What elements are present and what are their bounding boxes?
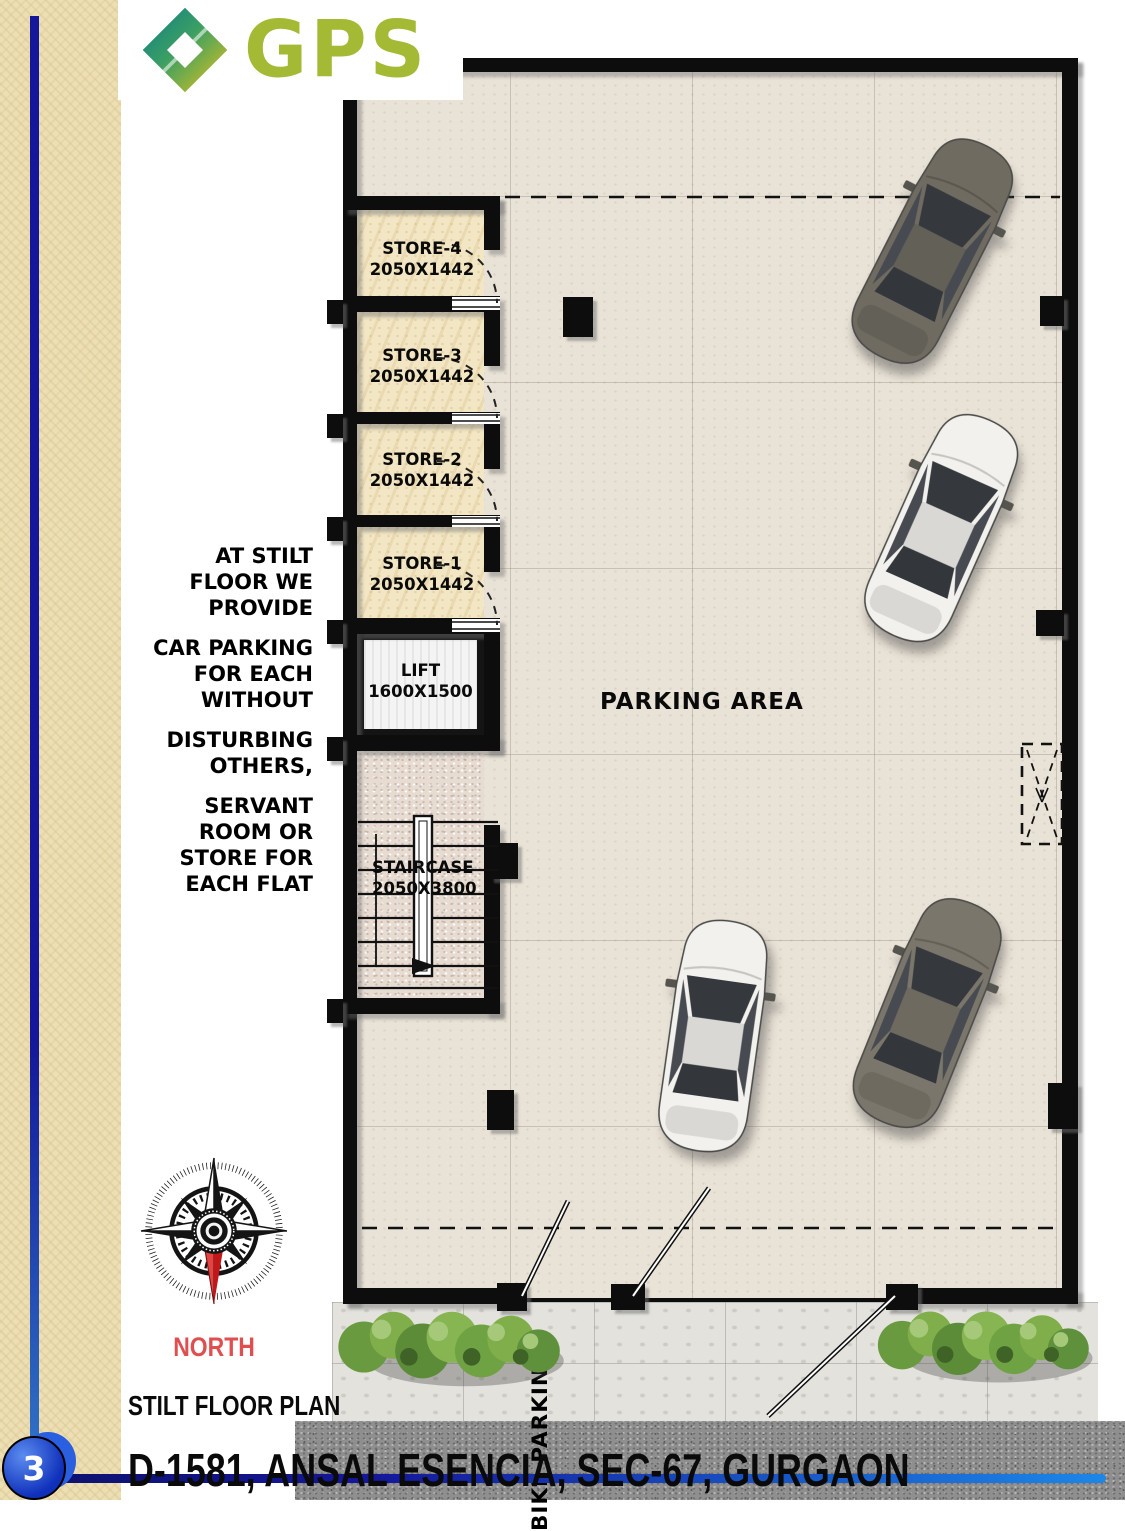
wall-s1-lift — [357, 618, 500, 634]
room-store-2: STORE-2 2050X1442 — [357, 449, 487, 492]
page-number-badge: 3 — [2, 1432, 74, 1498]
wall-left — [343, 58, 357, 1303]
pillar — [327, 999, 343, 1023]
wall-stair-bottom — [343, 998, 500, 1014]
address-title: D-1581, ANSAL ESENCIA, SEC-67, GURGAON — [128, 1443, 910, 1497]
pillar-right-wall — [1040, 296, 1064, 326]
pillar-freestanding — [487, 1090, 514, 1130]
pillar-gate — [611, 1284, 645, 1310]
pillar — [327, 517, 343, 541]
sidebar-texture-strip — [0, 0, 121, 1500]
annotation-paragraph: CAR PARKING FOR EACH WITHOUT — [118, 635, 313, 713]
room-store-4: STORE-4 2050X1442 — [357, 238, 487, 281]
annotation-paragraph: AT STILT FLOOR WE PROVIDE — [118, 543, 313, 621]
gps-diamond-icon — [140, 5, 230, 95]
gps-logo: GPS — [118, 0, 463, 100]
pillar-right-wall — [1036, 610, 1064, 636]
pillar — [327, 300, 343, 324]
page-number: 3 — [2, 1436, 66, 1500]
annotation-paragraph: DISTURBING OTHERS, — [118, 727, 313, 779]
wall-divider-s4-s3 — [357, 296, 500, 312]
accent-vertical-line — [30, 16, 39, 1440]
bush-row-right — [876, 1300, 1100, 1394]
wall-divider-s2-s1 — [357, 515, 500, 527]
north-label: NORTH — [149, 1332, 278, 1363]
room-lift: LIFT 1600X1500 — [357, 660, 484, 703]
pillar-right-wall — [1048, 1083, 1078, 1129]
room-store-3: STORE-3 2050X1442 — [357, 345, 487, 388]
parking-area-label: PARKING AREA — [600, 688, 820, 718]
pillar-stair-wall — [490, 843, 518, 879]
room-staircase: STAIRCASE 2050X3800 — [372, 857, 492, 900]
plan-title: STILT FLOOR PLAN — [128, 1390, 340, 1422]
gps-logo-text: GPS — [244, 11, 428, 90]
annotation-paragraph: SERVANT ROOM OR STORE FOR EACH FLAT — [118, 793, 313, 897]
wall-column-right-seg — [484, 634, 500, 751]
pillar — [327, 737, 343, 761]
compass-rose-icon — [138, 1155, 290, 1307]
wall-store4-top — [343, 196, 500, 210]
bush-row-left — [336, 1300, 572, 1398]
wall-lift-stair — [357, 735, 500, 751]
pillar — [327, 414, 343, 438]
pillar — [327, 620, 343, 644]
annotation-text: AT STILT FLOOR WE PROVIDE CAR PARKING FO… — [118, 543, 313, 911]
wall-divider-s3-s2 — [357, 412, 500, 424]
room-store-1: STORE-1 2050X1442 — [357, 553, 487, 596]
pillar-freestanding — [563, 297, 593, 337]
